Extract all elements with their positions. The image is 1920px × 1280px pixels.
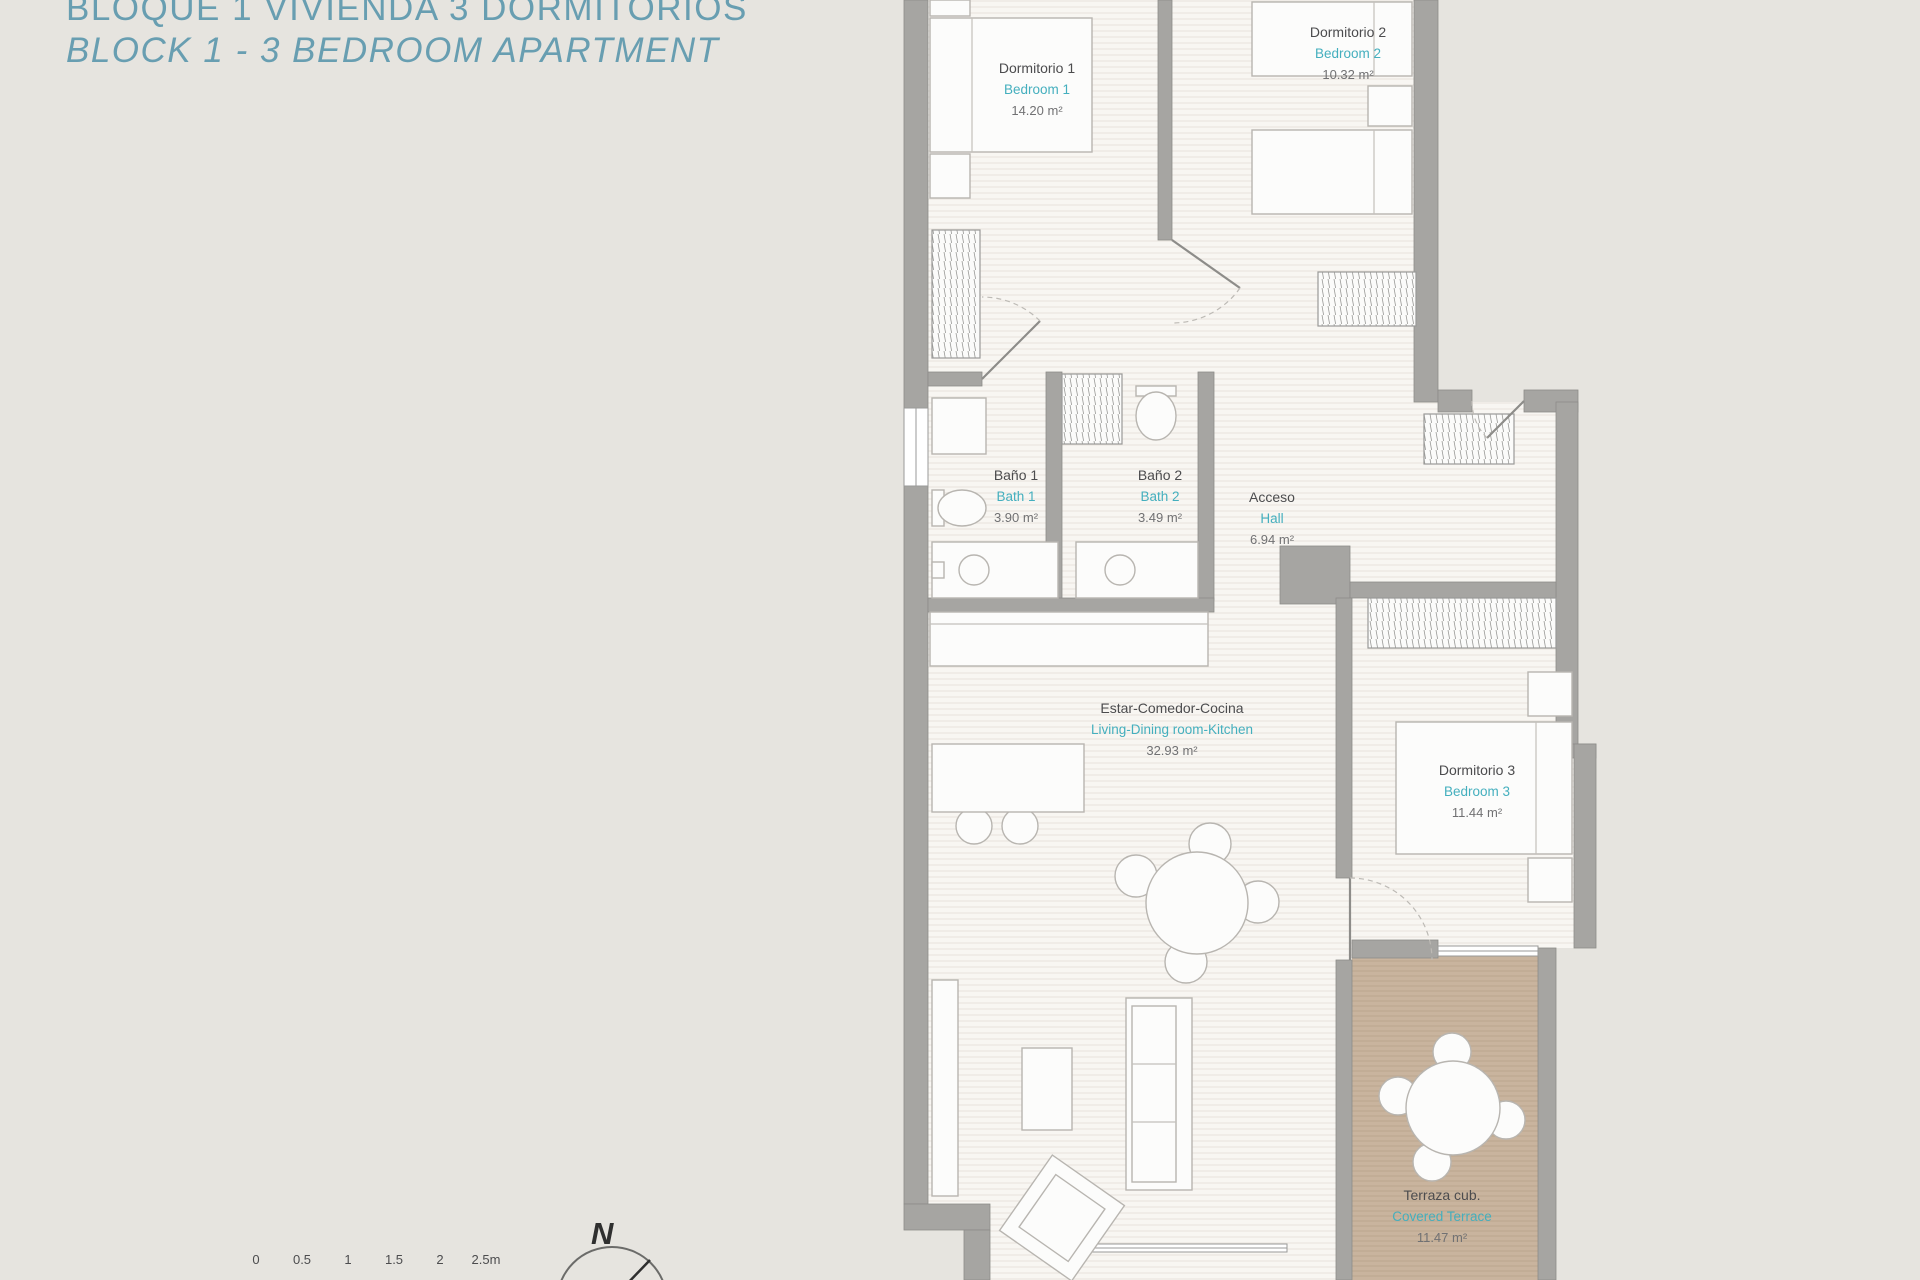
room-name-es: Dormitorio 3	[1439, 760, 1515, 781]
sideboard	[932, 980, 958, 1196]
scale-tick-label: 1.5	[385, 1252, 403, 1267]
room-label-bedroom-1: Dormitorio 1 Bedroom 1 14.20 m²	[999, 58, 1075, 121]
stool	[956, 808, 992, 844]
terrace-table	[1406, 1061, 1500, 1155]
room-name-es: Estar-Comedor-Cocina	[1091, 698, 1253, 719]
room-name-es: Baño 1	[994, 465, 1038, 486]
room-area: 11.47 m²	[1392, 1227, 1492, 1248]
faucet	[932, 562, 944, 578]
nightstand	[1368, 86, 1412, 126]
nightstand	[1528, 672, 1572, 716]
room-label-bath-1: Baño 1 Bath 1 3.90 m²	[994, 465, 1038, 528]
wardrobe-corridor	[1318, 272, 1416, 326]
nightstand	[1528, 858, 1572, 902]
floor-plan-drawing	[0, 0, 1920, 1280]
room-name-en: Bath 1	[994, 486, 1038, 507]
room-label-living: Estar-Comedor-Cocina Living-Dining room-…	[1091, 698, 1253, 761]
room-area: 14.20 m²	[999, 100, 1075, 121]
stool	[1002, 808, 1038, 844]
room-name-en: Bath 2	[1138, 486, 1182, 507]
room-name-en: Bedroom 3	[1439, 781, 1515, 802]
kitchen-island	[932, 744, 1084, 812]
coffee-table	[1022, 1048, 1072, 1130]
compass-north-label: N	[591, 1216, 613, 1252]
kitchen-counter	[930, 612, 1208, 666]
dining-table	[1146, 852, 1248, 954]
sink-bath-1	[959, 555, 989, 585]
room-name-es: Dormitorio 1	[999, 58, 1075, 79]
wardrobe-bedroom-1	[932, 230, 980, 358]
room-label-terrace: Terraza cub. Covered Terrace 11.47 m²	[1392, 1185, 1492, 1248]
scale-tick-label: 0	[252, 1252, 259, 1267]
room-area: 32.93 m²	[1091, 740, 1253, 761]
room-area: 3.90 m²	[994, 507, 1038, 528]
sink-bath-2	[1105, 555, 1135, 585]
wardrobe-hall	[1424, 414, 1514, 464]
room-label-hall: Acceso Hall 6.94 m²	[1249, 487, 1295, 550]
room-name-en: Living-Dining room-Kitchen	[1091, 719, 1253, 740]
scale-tick-label: 0.5	[293, 1252, 311, 1267]
room-name-en: Hall	[1249, 508, 1295, 529]
room-area: 3.49 m²	[1138, 507, 1182, 528]
scale-tick-label: 2.5m	[472, 1252, 501, 1267]
room-name-es: Baño 2	[1138, 465, 1182, 486]
room-name-en: Bedroom 2	[1310, 43, 1386, 64]
vanity-bath-1	[932, 398, 986, 454]
room-area: 11.44 m²	[1439, 802, 1515, 823]
room-area: 6.94 m²	[1249, 529, 1295, 550]
floorplan-page: BLOQUE 1 VIVIENDA 3 DORMITORIOS BLOCK 1 …	[0, 0, 1920, 1280]
nightstand	[930, 154, 970, 198]
room-label-bath-2: Baño 2 Bath 2 3.49 m²	[1138, 465, 1182, 528]
nightstand	[930, 0, 970, 16]
room-label-bedroom-2: Dormitorio 2 Bedroom 2 10.32 m²	[1310, 22, 1386, 85]
wardrobe-bedroom-3	[1368, 598, 1556, 648]
scale-tick-label: 1	[344, 1252, 351, 1267]
room-name-en: Bedroom 1	[999, 79, 1075, 100]
basin-counter-bath-1	[932, 542, 1058, 598]
room-name-en: Covered Terrace	[1392, 1206, 1492, 1227]
bed-bedroom-2-b	[1252, 130, 1412, 214]
scale-tick-label: 2	[436, 1252, 443, 1267]
toilet-bath-1	[938, 490, 986, 526]
toilet-bath-2	[1136, 392, 1176, 440]
room-name-es: Terraza cub.	[1392, 1185, 1492, 1206]
shower-bath-2	[1062, 374, 1122, 444]
room-label-bedroom-3: Dormitorio 3 Bedroom 3 11.44 m²	[1439, 760, 1515, 823]
room-name-es: Dormitorio 2	[1310, 22, 1386, 43]
room-area: 10.32 m²	[1310, 64, 1386, 85]
room-name-es: Acceso	[1249, 487, 1295, 508]
basin-counter-bath-2	[1076, 542, 1198, 598]
